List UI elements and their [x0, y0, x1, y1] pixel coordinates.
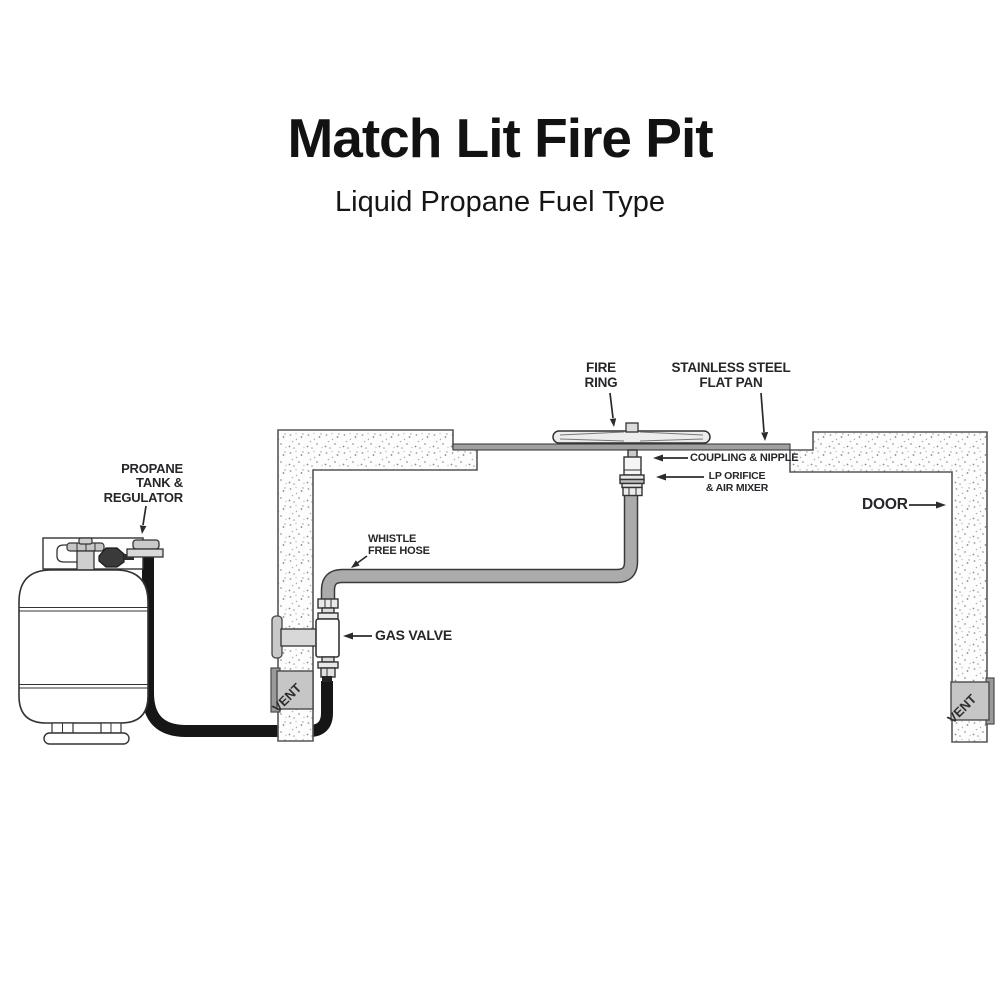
fire-ring-hub — [626, 423, 638, 432]
label-fire-ring: FIRE RING — [585, 361, 618, 391]
arrow-lp-orifice — [656, 474, 704, 481]
propane-tank — [19, 538, 163, 744]
fire-ring — [553, 423, 710, 443]
gas-valve-body — [316, 619, 339, 657]
arrow-whistle-free-hose — [351, 556, 367, 568]
regulator-cap — [133, 540, 159, 549]
label-whistle-free-hose: WHISTLE FREE HOSE — [368, 533, 430, 557]
label-propane-tank: PROPANE TANK & REGULATOR — [104, 462, 183, 505]
regulator-bulb — [99, 548, 124, 567]
stainless-flat-pan — [453, 444, 790, 450]
label-lp-orifice: LP ORIFICE & AIR MIXER — [706, 471, 768, 494]
label-door: DOOR — [862, 496, 908, 513]
tank-valve-stem — [77, 551, 94, 570]
arrow-gas-valve — [343, 633, 372, 640]
arrow-door — [909, 502, 946, 509]
label-coupling-nipple: COUPLING & NIPPLE — [690, 452, 798, 464]
tank-body — [19, 570, 148, 723]
callout-arrows — [140, 393, 946, 640]
page: Match Lit Fire Pit Liquid Propane Fuel T… — [0, 0, 1000, 1000]
arrow-propane-tank — [140, 506, 147, 534]
arrow-flat-pan — [761, 393, 768, 441]
label-flat-pan: STAINLESS STEEL FLAT PAN — [671, 361, 790, 391]
regulator-plate — [127, 549, 163, 557]
arrow-coupling-nipple — [653, 455, 688, 462]
coupling-and-nipple — [624, 450, 641, 475]
vent-right: VENT — [944, 678, 994, 726]
tank-base-ring — [44, 733, 129, 744]
label-gas-valve: GAS VALVE — [375, 628, 452, 643]
gas-valve-stem — [281, 629, 317, 646]
lp-orifice-air-mixer — [620, 475, 644, 496]
vent-left: VENT — [269, 668, 313, 715]
arrow-fire-ring — [610, 393, 616, 427]
